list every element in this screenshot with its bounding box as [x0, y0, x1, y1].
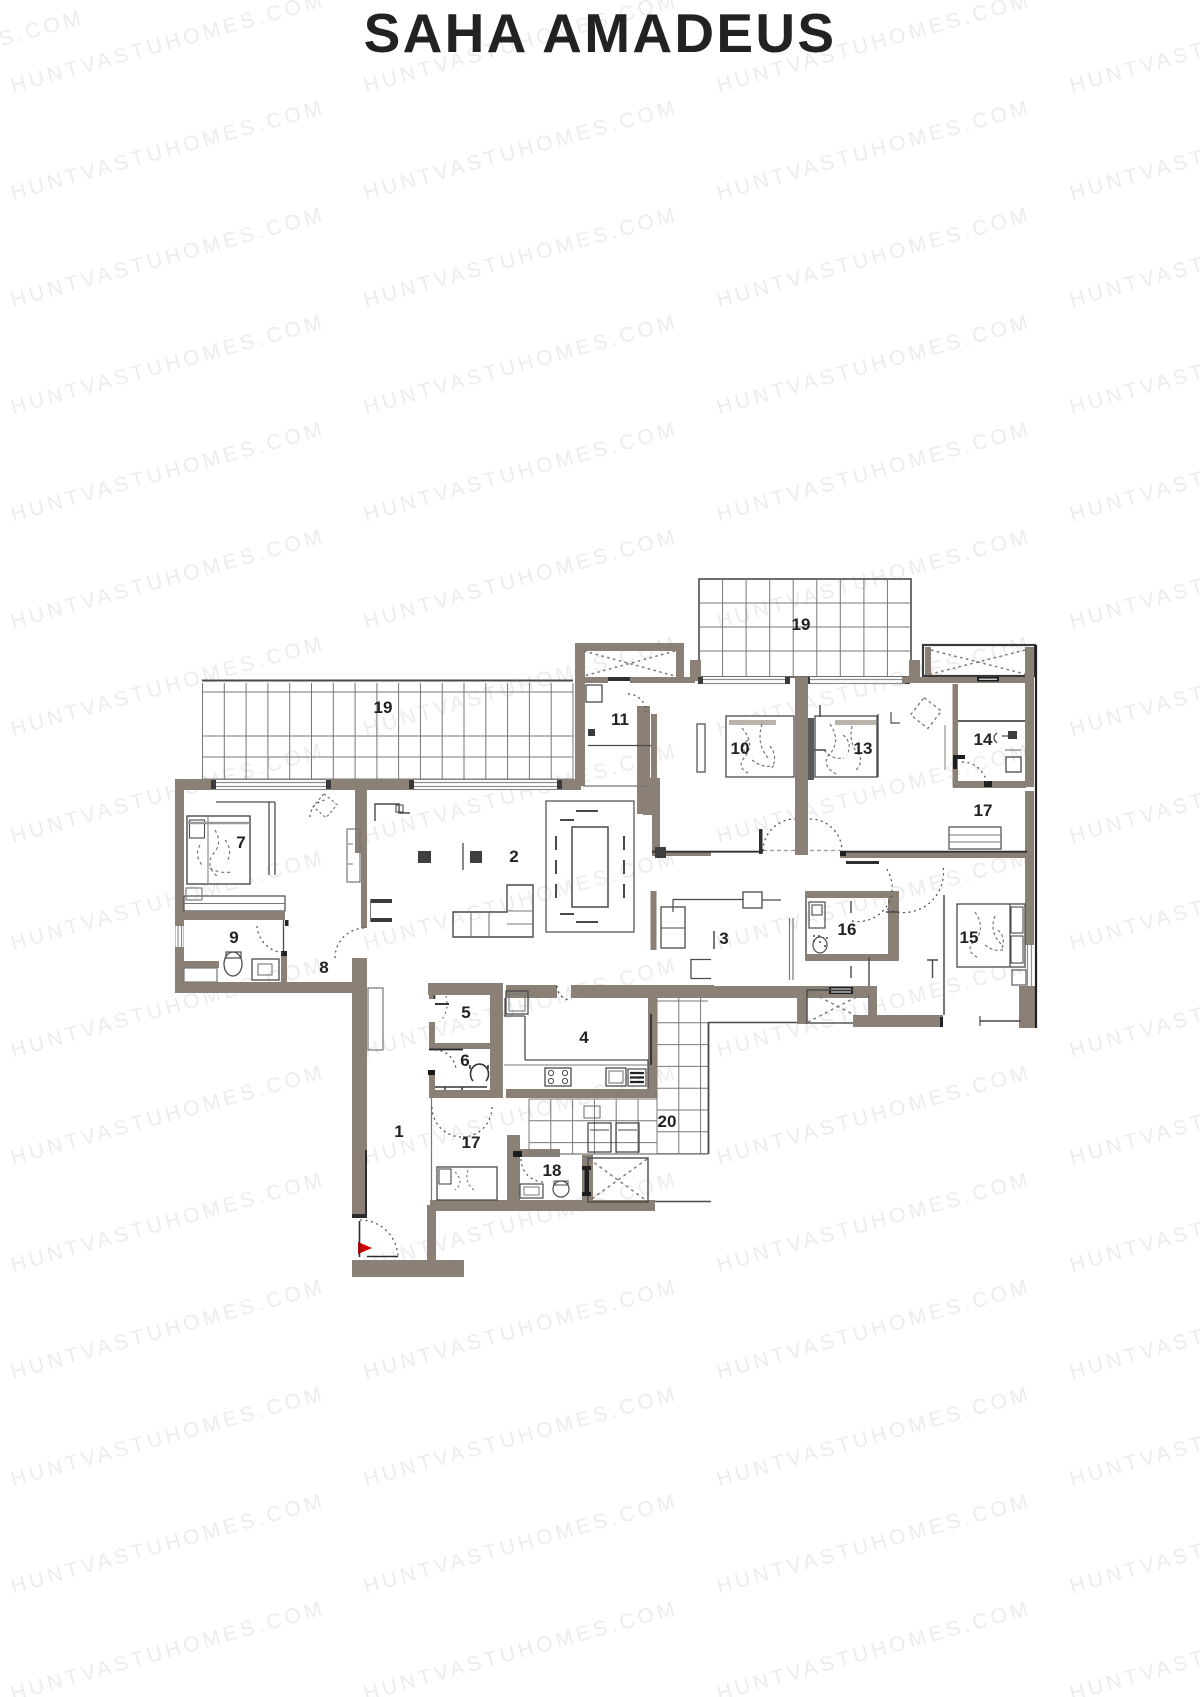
svg-text:HUNTVASTUHOMES.COM: HUNTVASTUHOMES.COM: [1067, 96, 1200, 205]
svg-text:HUNTVASTUHOMES.COM: HUNTVASTUHOMES.COM: [8, 632, 328, 741]
svg-text:HUNTVASTUHOMES.COM: HUNTVASTUHOMES.COM: [1067, 739, 1200, 848]
svg-text:HUNTVASTUHOMES.COM: HUNTVASTUHOMES.COM: [1067, 846, 1200, 955]
svg-text:HUNTVASTUHOMES.COM: HUNTVASTUHOMES.COM: [1067, 203, 1200, 312]
svg-text:2: 2: [509, 847, 518, 866]
svg-text:HUNTVASTUHOMES.COM: HUNTVASTUHOMES.COM: [1067, 632, 1200, 741]
svg-text:HUNTVASTUHOMES.COM: HUNTVASTUHOMES.COM: [1067, 417, 1200, 526]
svg-text:15: 15: [960, 928, 979, 947]
svg-text:HUNTVASTUHOMES.COM: HUNTVASTUHOMES.COM: [361, 953, 681, 1062]
svg-text:HUNTVASTUHOMES.COM: HUNTVASTUHOMES.COM: [361, 525, 681, 634]
svg-text:10: 10: [731, 739, 750, 758]
svg-text:HUNTVASTUHOMES.COM: HUNTVASTUHOMES.COM: [1067, 310, 1200, 419]
svg-text:19: 19: [792, 615, 811, 634]
svg-text:HUNTVASTUHOMES.COM: HUNTVASTUHOMES.COM: [361, 96, 681, 205]
svg-text:HUNTVASTUHOMES.COM: HUNTVASTUHOMES.COM: [1067, 1489, 1200, 1598]
svg-text:HUNTVASTUHOMES.COM: HUNTVASTUHOMES.COM: [1067, 1168, 1200, 1277]
svg-text:11: 11: [611, 710, 629, 729]
svg-text:HUNTVASTUHOMES.COM: HUNTVASTUHOMES.COM: [714, 417, 1034, 526]
svg-text:HUNTVASTUHOMES.COM: HUNTVASTUHOMES.COM: [8, 953, 328, 1062]
svg-text:HUNTVASTUHOMES.COM: HUNTVASTUHOMES.COM: [8, 1597, 328, 1697]
svg-text:HUNTVASTUHOMES.COM: HUNTVASTUHOMES.COM: [714, 96, 1034, 205]
svg-text:HUNTVASTUHOMES.COM: HUNTVASTUHOMES.COM: [8, 203, 328, 312]
svg-text:HUNTVASTUHOMES.COM: HUNTVASTUHOMES.COM: [1067, 953, 1200, 1062]
svg-text:HUNTVASTUHOMES.COM: HUNTVASTUHOMES.COM: [8, 310, 328, 419]
svg-text:HUNTVASTUHOMES.COM: HUNTVASTUHOMES.COM: [714, 310, 1034, 419]
svg-text:17: 17: [462, 1133, 481, 1152]
svg-text:HUNTVASTUHOMES.COM: HUNTVASTUHOMES.COM: [8, 525, 328, 634]
svg-text:14: 14: [974, 730, 993, 749]
svg-text:HUNTVASTUHOMES.COM: HUNTVASTUHOMES.COM: [361, 739, 681, 848]
svg-text:HUNTVASTUHOMES.COM: HUNTVASTUHOMES.COM: [8, 1489, 328, 1598]
svg-text:17: 17: [974, 801, 993, 820]
svg-text:HUNTVASTUHOMES.COM: HUNTVASTUHOMES.COM: [714, 1168, 1034, 1277]
svg-text:HUNTVASTUHOMES.COM: HUNTVASTUHOMES.COM: [361, 1489, 681, 1598]
svg-text:HUNTVASTUHOMES.COM: HUNTVASTUHOMES.COM: [361, 1382, 681, 1491]
svg-text:HUNTVASTUHOMES.COM: HUNTVASTUHOMES.COM: [8, 1061, 328, 1170]
svg-text:HUNTVASTUHOMES.COM: HUNTVASTUHOMES.COM: [1067, 0, 1200, 98]
svg-text:20: 20: [658, 1112, 677, 1131]
svg-text:9: 9: [229, 928, 238, 947]
svg-text:HUNTVASTUHOMES.COM: HUNTVASTUHOMES.COM: [361, 1275, 681, 1384]
svg-text:HUNTVASTUHOMES.COM: HUNTVASTUHOMES.COM: [361, 203, 681, 312]
svg-text:HUNTVASTUHOMES.COM: HUNTVASTUHOMES.COM: [714, 1061, 1034, 1170]
svg-text:HUNTVASTUHOMES.COM: HUNTVASTUHOMES.COM: [361, 1597, 681, 1697]
svg-text:HUNTVASTUHOMES.COM: HUNTVASTUHOMES.COM: [8, 1382, 328, 1491]
svg-text:19: 19: [374, 698, 393, 717]
svg-text:8: 8: [319, 958, 328, 977]
svg-text:HUNTVASTUHOMES.COM: HUNTVASTUHOMES.COM: [714, 203, 1034, 312]
svg-text:HUNTVASTUHOMES.COM: HUNTVASTUHOMES.COM: [1067, 1597, 1200, 1697]
svg-text:HUNTVASTUHOMES.COM: HUNTVASTUHOMES.COM: [714, 1382, 1034, 1491]
svg-text:16: 16: [838, 920, 857, 939]
svg-text:HUNTVASTUHOMES.COM: HUNTVASTUHOMES.COM: [8, 846, 328, 955]
svg-text:5: 5: [461, 1003, 470, 1022]
svg-text:HUNTVASTUHOMES.COM: HUNTVASTUHOMES.COM: [1067, 1382, 1200, 1491]
svg-text:HUNTVASTUHOMES.COM: HUNTVASTUHOMES.COM: [714, 1489, 1034, 1598]
svg-text:HUNTVASTUHOMES.COM: HUNTVASTUHOMES.COM: [8, 1275, 328, 1384]
svg-text:SAHA AMADEUS: SAHA AMADEUS: [364, 2, 837, 64]
svg-text:13: 13: [854, 739, 873, 758]
svg-text:HUNTVASTUHOMES.COM: HUNTVASTUHOMES.COM: [8, 417, 328, 526]
svg-text:HUNTVASTUHOMES.COM: HUNTVASTUHOMES.COM: [1067, 525, 1200, 634]
svg-text:HUNTVASTUHOMES.COM: HUNTVASTUHOMES.COM: [8, 96, 328, 205]
svg-text:HUNTVASTUHOMES.COM: HUNTVASTUHOMES.COM: [361, 310, 681, 419]
svg-text:HUNTVASTUHOMES.COM: HUNTVASTUHOMES.COM: [8, 739, 328, 848]
svg-text:HUNTVASTUHOMES.COM: HUNTVASTUHOMES.COM: [714, 1275, 1034, 1384]
svg-text:HUNTVASTUHOMES.COM: HUNTVASTUHOMES.COM: [361, 417, 681, 526]
svg-text:4: 4: [579, 1028, 589, 1047]
svg-text:7: 7: [236, 833, 245, 852]
svg-text:18: 18: [543, 1161, 562, 1180]
svg-text:HUNTVASTUHOMES.COM: HUNTVASTUHOMES.COM: [1067, 1061, 1200, 1170]
svg-text:HUNTVASTUHOMES.COM: HUNTVASTUHOMES.COM: [361, 846, 681, 955]
svg-text:HUNTVASTUHOMES.COM: HUNTVASTUHOMES.COM: [8, 1168, 328, 1277]
svg-text:HUNTVASTUHOMES.COM: HUNTVASTUHOMES.COM: [714, 1597, 1034, 1697]
svg-text:HUNTVASTUHOMES.COM: HUNTVASTUHOMES.COM: [1067, 1275, 1200, 1384]
svg-text:1: 1: [394, 1122, 403, 1141]
svg-text:3: 3: [719, 929, 728, 948]
svg-text:6: 6: [460, 1051, 469, 1070]
